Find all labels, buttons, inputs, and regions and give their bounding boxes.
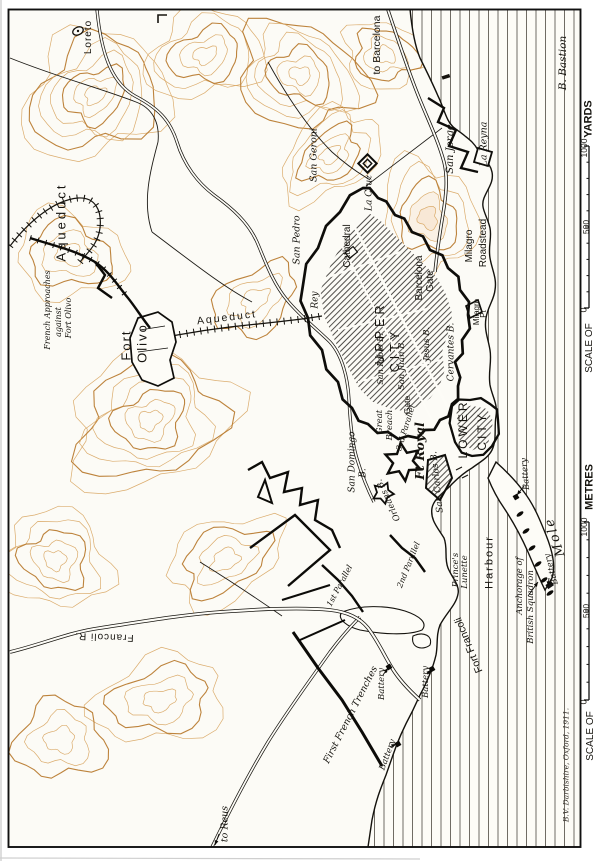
label-french-approaches-line3: Fort Olivo — [65, 298, 73, 339]
label-french-approaches-line1: French Approaches — [44, 270, 52, 349]
label-to-reus: to Reus — [220, 806, 230, 842]
label-battery-1: Battery — [378, 668, 387, 700]
label-san-juan-bastion: San Juan B. — [398, 340, 407, 390]
label-cathedral: Cathedral — [343, 224, 353, 267]
label-san-pedro: San Pedro — [292, 215, 302, 264]
yards-scale-1000: 1000 — [580, 139, 589, 158]
label-battery-3: Battery — [379, 738, 398, 771]
label-lower-city-line2: CITY — [476, 411, 488, 450]
metres-scale-caption: SCALE OF — [586, 711, 596, 760]
label-san-domingo-line2: B. — [360, 468, 369, 477]
label-1st-parallel: 1st Parallel — [326, 564, 355, 608]
metres-scale-title: METRES — [585, 464, 596, 510]
yards-scale-500: 500 — [582, 220, 591, 234]
label-battery-2: Battery — [422, 666, 431, 698]
label-fort-olivo-line2: Olivo — [136, 323, 149, 363]
label-fort-royal: Ft Royal — [414, 422, 427, 480]
label-great-breach-line1: Great — [376, 410, 385, 434]
metres-scale-500: 500 — [582, 604, 591, 618]
label-barcelona-gate-line1: Barcelona — [415, 255, 425, 300]
label-mole: Mole — [542, 515, 567, 558]
label-jesus-bastion: Jesus B. — [423, 327, 432, 361]
label-anchorage-line2: British Squadron — [527, 570, 536, 644]
metres-scale-0: 0 — [580, 699, 589, 704]
label-barcelona-gate-line2: Gate — [426, 270, 436, 292]
label-milagro-pt-line2: Pt — [480, 310, 488, 318]
label-loreto: Loreto — [84, 20, 94, 54]
label-francoli-river: Francoli R. — [74, 630, 134, 642]
label-san-jorge: San Jorge — [446, 124, 456, 174]
label-french-approaches-line2: against — [55, 307, 63, 337]
label-san-domingo-line1: San Domingo — [349, 431, 358, 492]
label-2nd-parallel: 2nd Parallel — [396, 541, 422, 589]
yards-scale-title: YARDS — [584, 100, 595, 138]
label-san-geroni: San Geroni — [309, 128, 319, 182]
label-fort-francoli: Fort Francoli — [453, 616, 485, 675]
label-fort-olivo-line1: Fort — [120, 329, 133, 360]
label-great-breach-line2: Breach — [386, 410, 395, 441]
yards-scale-0: 0 — [580, 307, 589, 312]
label-aqueduct-east: Aqueduct — [196, 309, 257, 327]
map-canvas: Loreto to Barcelona B. Bastion San Geron… — [0, 0, 600, 861]
label-anchorage-line1: Anchorage of — [516, 557, 525, 615]
label-orleans-bastion: Orleans B. — [376, 478, 403, 523]
label-aqueduct-nw: Aqueduct — [55, 183, 68, 262]
label-milagro-roadstead-line1: Milagro — [465, 230, 475, 263]
label-b-bastion: B. Bastion — [558, 36, 569, 90]
label-battery-4: Battery — [520, 458, 531, 491]
label-cervantes-bastion: Cervantes B. — [448, 323, 457, 382]
label-san-carlos-bastion: San Carlos B. — [430, 451, 445, 514]
label-la-cruz: La Cruz — [366, 175, 375, 211]
label-to-barcelona: to Barcelona — [372, 16, 383, 75]
label-san-pablo-bastion: San Pablo B. — [377, 333, 385, 384]
label-rey: Rey — [312, 291, 321, 308]
label-lower-city-line1: LOWER — [457, 399, 469, 458]
map-labels-layer: Loreto to Barcelona B. Bastion San Geron… — [0, 0, 600, 861]
label-milagro-roadstead-line2: Roadstead — [479, 219, 489, 267]
label-cartographer-signature: B.V. Darbishire, Oxford, 1911. — [562, 708, 570, 822]
metres-scale-1000: 1000 — [580, 518, 589, 537]
label-first-french-trenches: First French Trenches — [322, 665, 379, 765]
label-princes-lunette-line2: Lunette — [461, 555, 470, 589]
label-la-reyna: La Reyna — [479, 122, 489, 167]
label-harbour: Harbour — [485, 535, 496, 589]
yards-scale-caption: SCALE OF — [585, 323, 595, 372]
